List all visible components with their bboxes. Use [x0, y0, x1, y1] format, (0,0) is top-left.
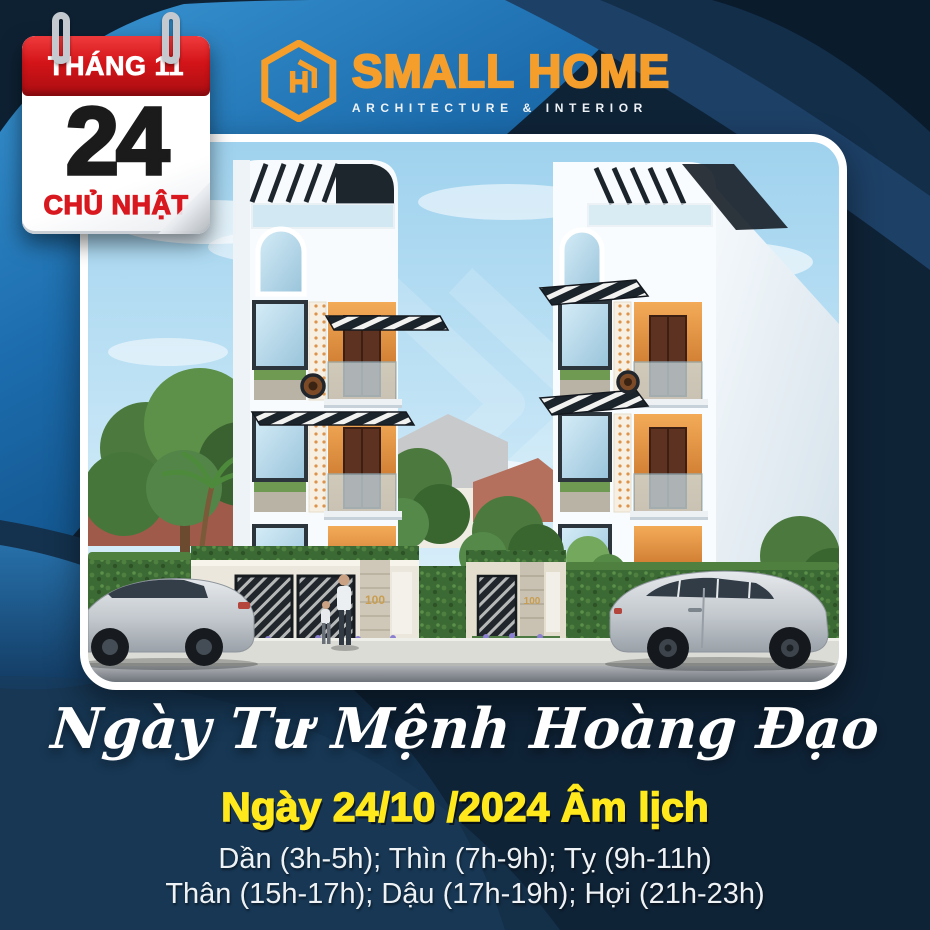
house-number-right: 100 [524, 596, 541, 607]
zodiac-hours-line1: Dần (3h-5h); Thìn (7h-9h); Tỵ (9h-11h) [0, 842, 930, 877]
calendar-day: 24 [22, 94, 210, 190]
binder-ring-icon [162, 12, 180, 64]
brand-logo: SMALL HOME ARCHITECTURE & INTERIOR [260, 40, 670, 122]
gate-block-right: 100 [466, 550, 566, 644]
calendar-widget: THÁNG 11 24 CHỦ NHẬT [22, 36, 210, 234]
calendar-card: THÁNG 11 24 CHỦ NHẬT [22, 36, 210, 234]
zodiac-hours-line2: Thân (15h-17h); Dậu (17h-19h); Hợi (21h-… [0, 877, 930, 912]
brand-name: SMALL HOME [352, 48, 670, 94]
calendar-month: THÁNG 11 [22, 36, 210, 96]
binder-ring-icon [52, 12, 70, 64]
poster-canvas: 100 100 [0, 0, 930, 930]
headline-script: Ngày Tư Mệnh Hoàng Đạo [0, 696, 930, 762]
house-number-left: 100 [365, 593, 385, 607]
lunar-date: Ngày 24/10 /2024 Âm lịch [0, 784, 930, 831]
brand-tagline: ARCHITECTURE & INTERIOR [352, 101, 670, 115]
hexagon-sh-monogram-icon [260, 40, 338, 122]
zodiac-hours: Dần (3h-5h); Thìn (7h-9h); Tỵ (9h-11h) T… [0, 842, 930, 912]
